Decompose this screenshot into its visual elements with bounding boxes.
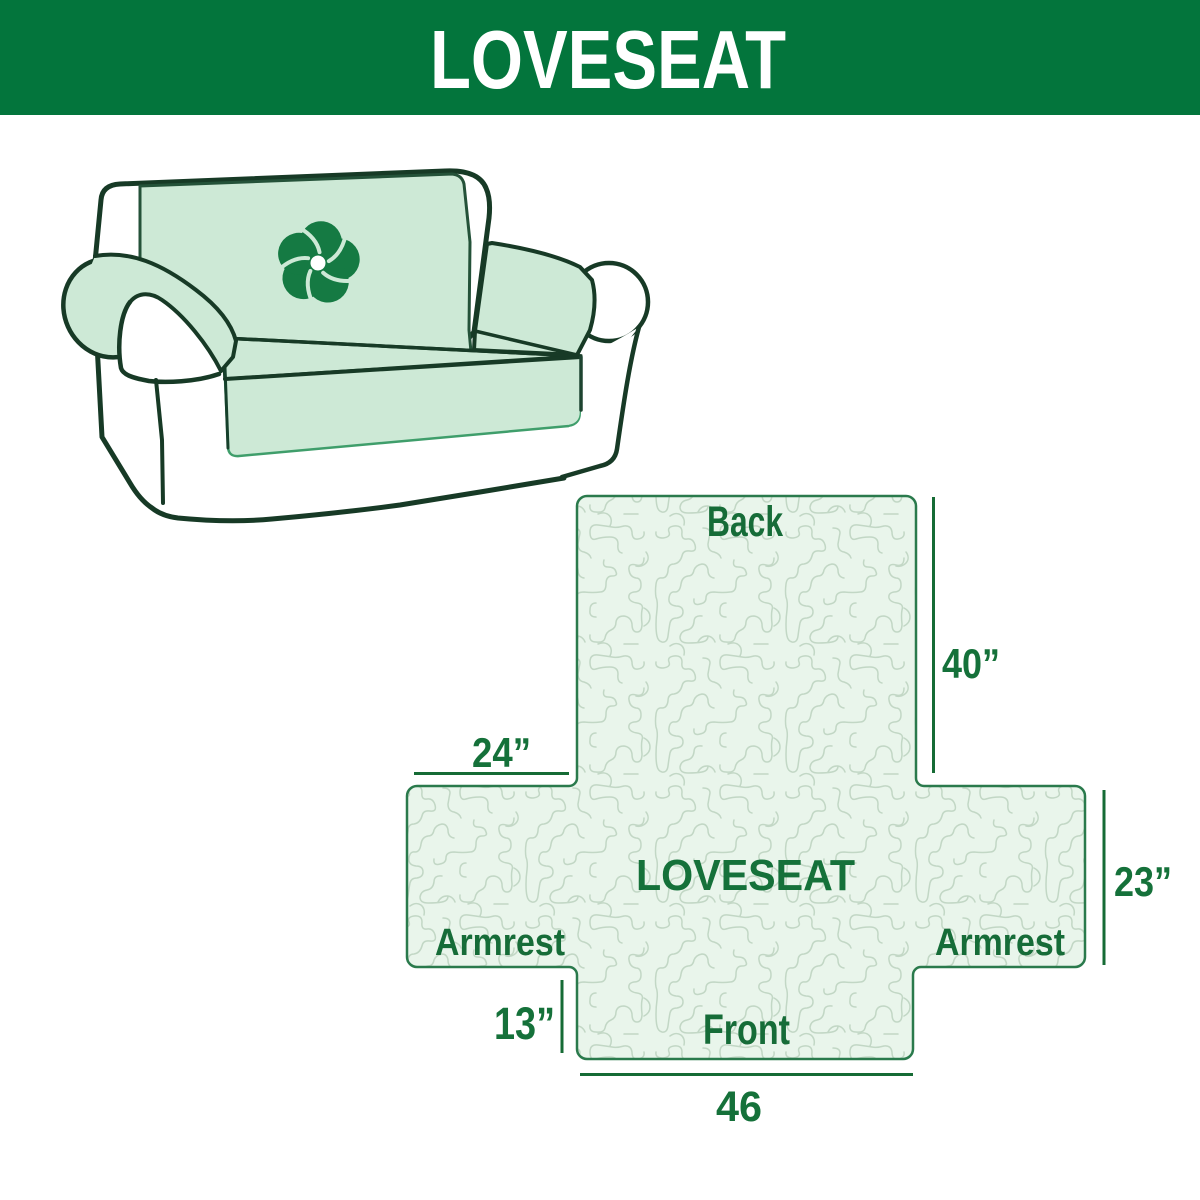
svg-text:40”: 40” [942,640,1000,687]
svg-text:Armrest: Armrest [435,922,565,964]
svg-text:13”: 13” [494,998,555,1049]
svg-text:24”: 24” [472,729,531,776]
svg-text:23”: 23” [1114,858,1172,905]
svg-text:Armrest: Armrest [935,922,1065,964]
svg-text:LOVESEAT: LOVESEAT [636,851,855,900]
svg-text:LOVESEAT: LOVESEAT [430,13,786,106]
svg-text:Back: Back [707,498,783,546]
svg-text:46: 46 [716,1083,762,1131]
svg-text:Front: Front [703,1006,790,1054]
